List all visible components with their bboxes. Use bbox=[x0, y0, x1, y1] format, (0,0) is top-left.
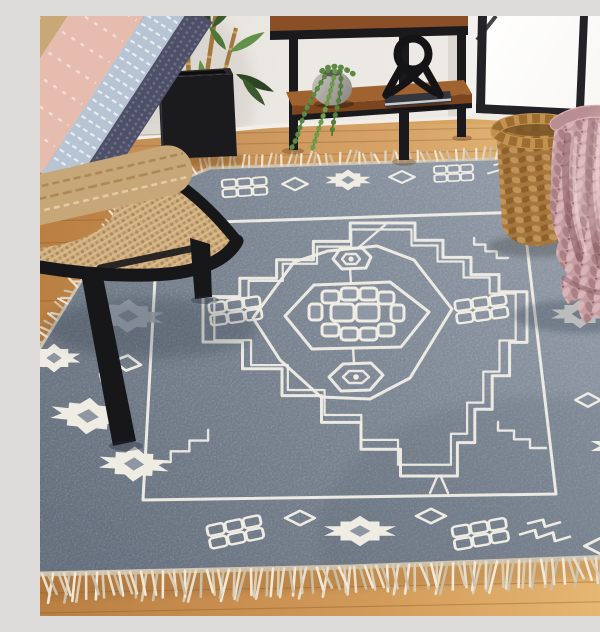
scene-svg bbox=[40, 16, 600, 616]
chair-shadow bbox=[47, 298, 257, 358]
chair-foot-shadow bbox=[109, 441, 143, 451]
room-photo: Bright styled room photo: a slate gray f… bbox=[40, 16, 600, 616]
table-leg bbox=[289, 26, 298, 150]
chair-foot-shadow bbox=[191, 296, 219, 304]
